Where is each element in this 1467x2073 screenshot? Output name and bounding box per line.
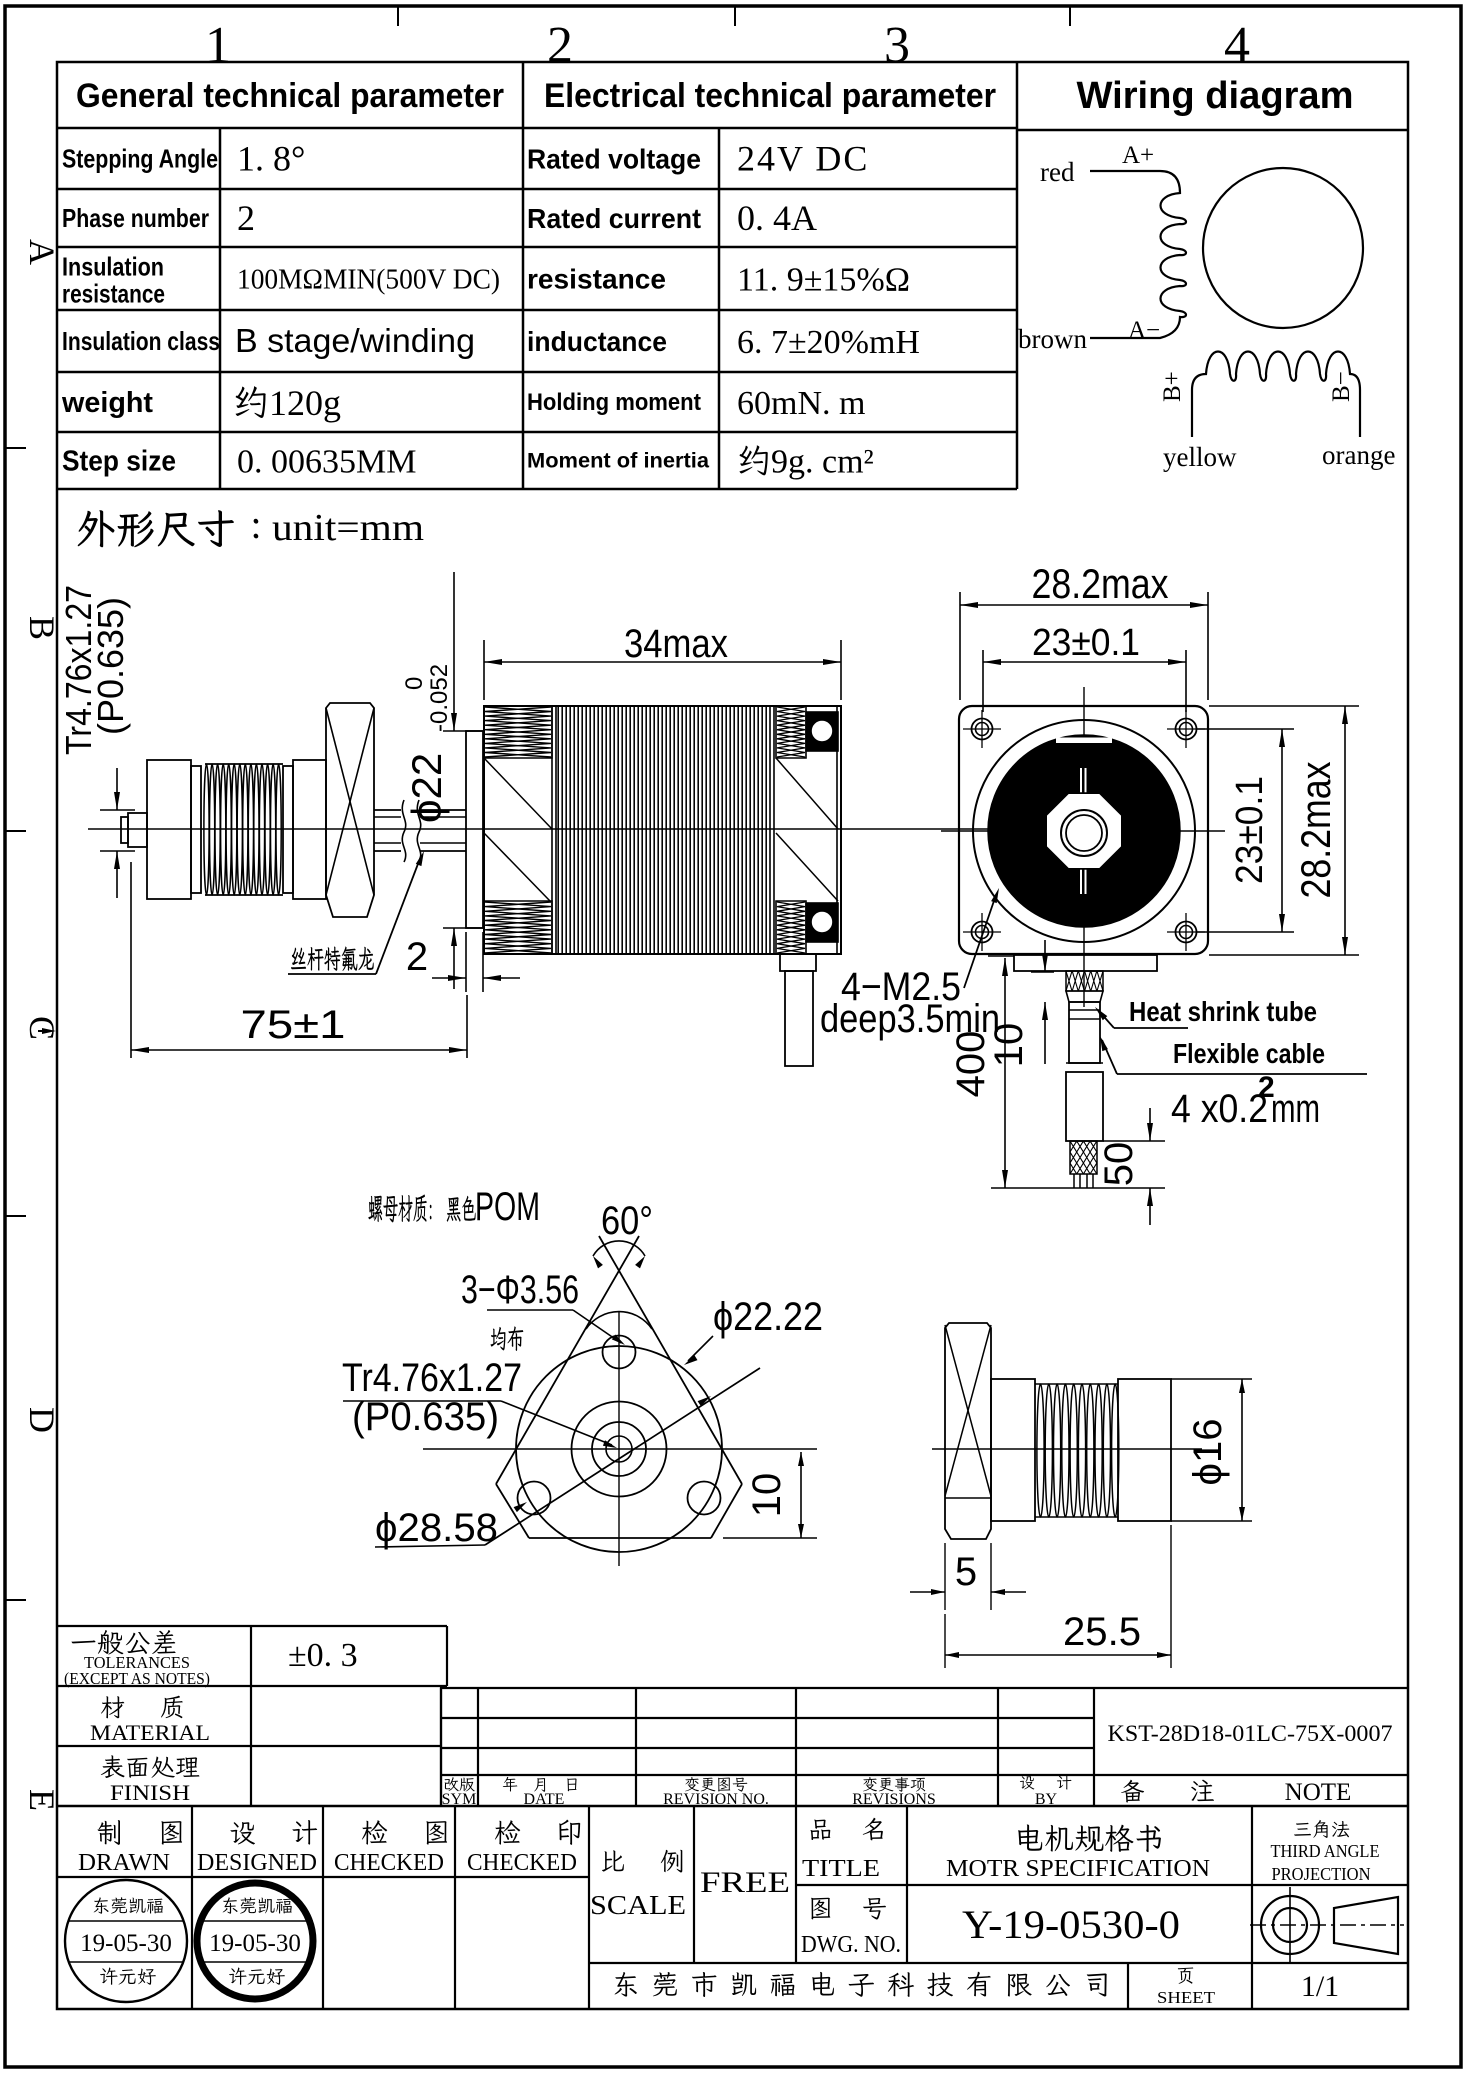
svg-text:Insulation: Insulation [62, 252, 164, 282]
svg-text:NOTE: NOTE [1285, 1779, 1352, 1806]
svg-text:A+: A+ [1122, 142, 1154, 169]
svg-text:2: 2 [406, 935, 428, 979]
svg-text:24V DC: 24V DC [737, 139, 869, 179]
svg-text:5: 5 [955, 1550, 977, 1594]
svg-text:1: 1 [205, 17, 231, 74]
svg-text:FREE: FREE [700, 1866, 790, 1899]
svg-text:3−Φ3.56: 3−Φ3.56 [461, 1268, 579, 1312]
svg-text:Phase number: Phase number [62, 203, 209, 233]
svg-text:0. 4A: 0. 4A [737, 198, 817, 238]
svg-text:resistance: resistance [62, 279, 165, 309]
svg-text:CHECKED: CHECKED [467, 1850, 577, 1876]
svg-text:0: 0 [401, 677, 428, 690]
svg-text:ϕ16: ϕ16 [1186, 1419, 1230, 1486]
svg-text:60mN. m: 60mN. m [737, 385, 865, 422]
svg-text:4 x0.2: 4 x0.2 [1171, 1087, 1268, 1131]
svg-text:B+: B+ [1159, 371, 1186, 402]
svg-text:0. 00635MM: 0. 00635MM [237, 444, 416, 481]
svg-text:10: 10 [745, 1473, 789, 1518]
svg-text:SYM: SYM [442, 1791, 477, 1808]
svg-text:9g. cm²: 9g. cm² [771, 444, 874, 481]
svg-text:(P0.635): (P0.635) [90, 597, 131, 735]
svg-text:A−: A− [1128, 317, 1160, 344]
svg-text:DWG. NO.: DWG. NO. [801, 1932, 901, 1958]
svg-text:TITLE: TITLE [802, 1856, 880, 1882]
svg-text:(EXCEPT AS NOTES): (EXCEPT AS NOTES) [64, 1669, 210, 1688]
svg-text:-0.052: -0.052 [426, 664, 453, 732]
svg-text:B−: B− [1328, 371, 1355, 402]
svg-text:75±1: 75±1 [241, 1003, 346, 1047]
svg-text:4: 4 [1224, 17, 1250, 74]
svg-text:Heat shrink tube: Heat shrink tube [1129, 996, 1317, 1027]
svg-text:Rated voltage: Rated voltage [527, 144, 701, 175]
svg-text:General technical parameter: General technical parameter [76, 77, 504, 115]
svg-text:23±0.1: 23±0.1 [1032, 622, 1140, 664]
svg-text:SHEET: SHEET [1157, 1988, 1216, 2007]
svg-text:Moment of inertia: Moment of inertia [527, 450, 709, 473]
svg-text:34max: 34max [624, 622, 728, 666]
svg-text:Step size: Step size [62, 446, 176, 478]
svg-text:23±0.1: 23±0.1 [1229, 776, 1271, 884]
svg-text:DATE: DATE [524, 1791, 565, 1808]
svg-text:Tr4.76x1.27: Tr4.76x1.27 [342, 1356, 522, 1400]
svg-text:120g: 120g [269, 383, 341, 423]
svg-text:POM: POM [475, 1185, 540, 1229]
svg-text:Electrical technical parameter: Electrical technical parameter [544, 77, 996, 115]
svg-text:REVISIONS: REVISIONS [852, 1791, 936, 1808]
svg-text:ϕ28.58: ϕ28.58 [375, 1506, 498, 1550]
svg-text:6. 7±20%mH: 6. 7±20%mH [737, 324, 920, 361]
svg-text:±0. 3: ±0. 3 [288, 1637, 358, 1674]
svg-text:BY: BY [1035, 1791, 1058, 1808]
svg-text:DESIGNED: DESIGNED [197, 1850, 317, 1876]
svg-text:DRAWN: DRAWN [78, 1850, 170, 1876]
svg-text:Holding moment: Holding moment [527, 389, 701, 416]
svg-text:orange: orange [1322, 440, 1395, 470]
svg-text:28.2max: 28.2max [1292, 762, 1339, 899]
svg-text:MOTR SPECIFICATION: MOTR SPECIFICATION [946, 1856, 1210, 1882]
svg-text:yellow: yellow [1163, 442, 1237, 472]
svg-text:Stepping Angle: Stepping Angle [62, 144, 218, 174]
svg-text:2: 2 [237, 198, 255, 238]
svg-text:28.2max: 28.2max [1032, 560, 1169, 607]
svg-text:PROJECTION: PROJECTION [1272, 1864, 1371, 1884]
svg-text:unit=mm: unit=mm [272, 507, 424, 549]
svg-text:resistance: resistance [527, 264, 666, 295]
svg-text:25.5: 25.5 [1063, 1610, 1141, 1654]
svg-text:1. 8°: 1. 8° [237, 139, 305, 179]
svg-text:inductance: inductance [527, 326, 667, 357]
svg-text:red: red [1040, 157, 1075, 187]
svg-text:11. 9±15%Ω: 11. 9±15%Ω [737, 262, 910, 299]
svg-text:mm: mm [1271, 1087, 1320, 1131]
svg-text:1/1: 1/1 [1301, 1970, 1339, 2003]
svg-text:60°: 60° [601, 1199, 653, 1243]
svg-text:CHECKED: CHECKED [334, 1850, 444, 1876]
svg-text:MATERIAL: MATERIAL [90, 1720, 210, 1745]
svg-text:Y-19-0530-0: Y-19-0530-0 [962, 1902, 1180, 1947]
svg-text:B stage/winding: B stage/winding [235, 322, 475, 359]
svg-text:ϕ22.22: ϕ22.22 [713, 1295, 823, 1339]
svg-text:Rated current: Rated current [527, 203, 701, 234]
svg-text:THIRD ANGLE: THIRD ANGLE [1271, 1841, 1380, 1861]
svg-text:Flexible cable: Flexible cable [1173, 1038, 1325, 1069]
svg-text:3: 3 [884, 17, 910, 74]
svg-text:SCALE: SCALE [590, 1890, 686, 1920]
svg-text:50: 50 [1097, 1142, 1141, 1187]
svg-text:Wiring diagram: Wiring diagram [1077, 75, 1354, 117]
svg-text:REVISION NO.: REVISION NO. [663, 1791, 769, 1808]
svg-text:KST-28D18-01LC-75X-0007: KST-28D18-01LC-75X-0007 [1108, 1721, 1393, 1746]
svg-text:2: 2 [547, 17, 573, 74]
svg-text:Insulation class: Insulation class [62, 326, 220, 356]
svg-text:FINISH: FINISH [110, 1780, 190, 1805]
svg-text:weight: weight [61, 387, 153, 419]
svg-text:100MΩMIN(500V DC): 100MΩMIN(500V DC) [237, 265, 500, 296]
svg-text:ϕ22: ϕ22 [403, 753, 450, 823]
svg-text:10: 10 [987, 1023, 1031, 1068]
svg-text:brown: brown [1018, 324, 1087, 354]
